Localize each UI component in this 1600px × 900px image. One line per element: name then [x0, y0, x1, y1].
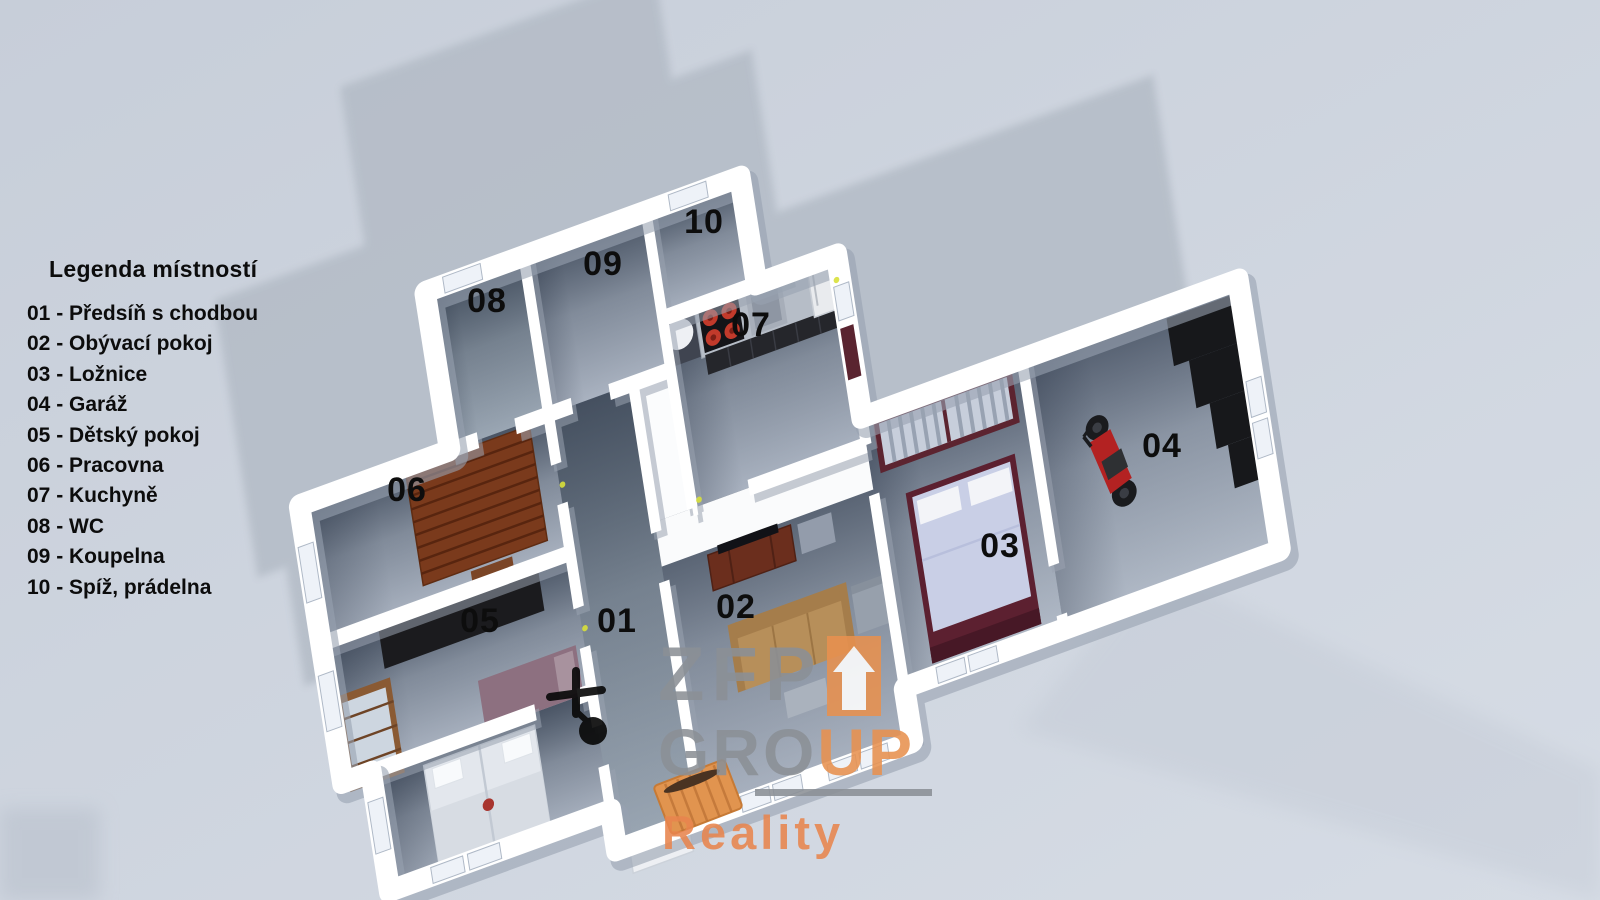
room-label-06: 06	[387, 471, 427, 509]
logo-group-text: GROUP	[658, 715, 915, 789]
logo-zfp-text: ZFP	[658, 632, 823, 717]
legend-item-09: 09 - Koupelna	[27, 542, 258, 572]
floorplan-render: 01 02 03 04 05 06 07 08 09 10 ZFP GROUP …	[0, 0, 1600, 900]
logo-reality-text: Reality	[662, 806, 844, 859]
legend: Legenda místností 01 - Předsíň s chodbou…	[27, 256, 258, 603]
legend-item-07: 07 - Kuchyně	[27, 481, 258, 511]
legend-item-03: 03 - Ložnice	[27, 360, 258, 390]
room-label-01: 01	[597, 602, 637, 640]
legend-item-08: 08 - WC	[27, 512, 258, 542]
house-arrow-up-icon	[827, 636, 881, 716]
logo-up: UP	[817, 715, 915, 789]
room-label-07: 07	[731, 306, 771, 344]
logo-underline	[755, 789, 932, 796]
room-label-09: 09	[583, 245, 623, 283]
room-label-05: 05	[460, 602, 500, 640]
room-label-08: 08	[467, 282, 507, 320]
legend-item-04: 04 - Garáž	[27, 390, 258, 420]
legend-title: Legenda místností	[49, 256, 258, 283]
room-label-02: 02	[716, 588, 756, 626]
logo-gro: GRO	[658, 715, 817, 789]
contact-shadow-bottom-left	[0, 808, 100, 900]
legend-item-10: 10 - Spíž, prádelna	[27, 573, 258, 603]
room-label-03: 03	[980, 527, 1020, 565]
legend-item-02: 02 - Obývací pokoj	[27, 329, 258, 359]
legend-item-05: 05 - Dětský pokoj	[27, 421, 258, 451]
legend-item-01: 01 - Předsíň s chodbou	[27, 299, 258, 329]
room-label-10: 10	[684, 203, 724, 241]
room-label-04: 04	[1142, 427, 1182, 465]
legend-item-06: 06 - Pracovna	[27, 451, 258, 481]
